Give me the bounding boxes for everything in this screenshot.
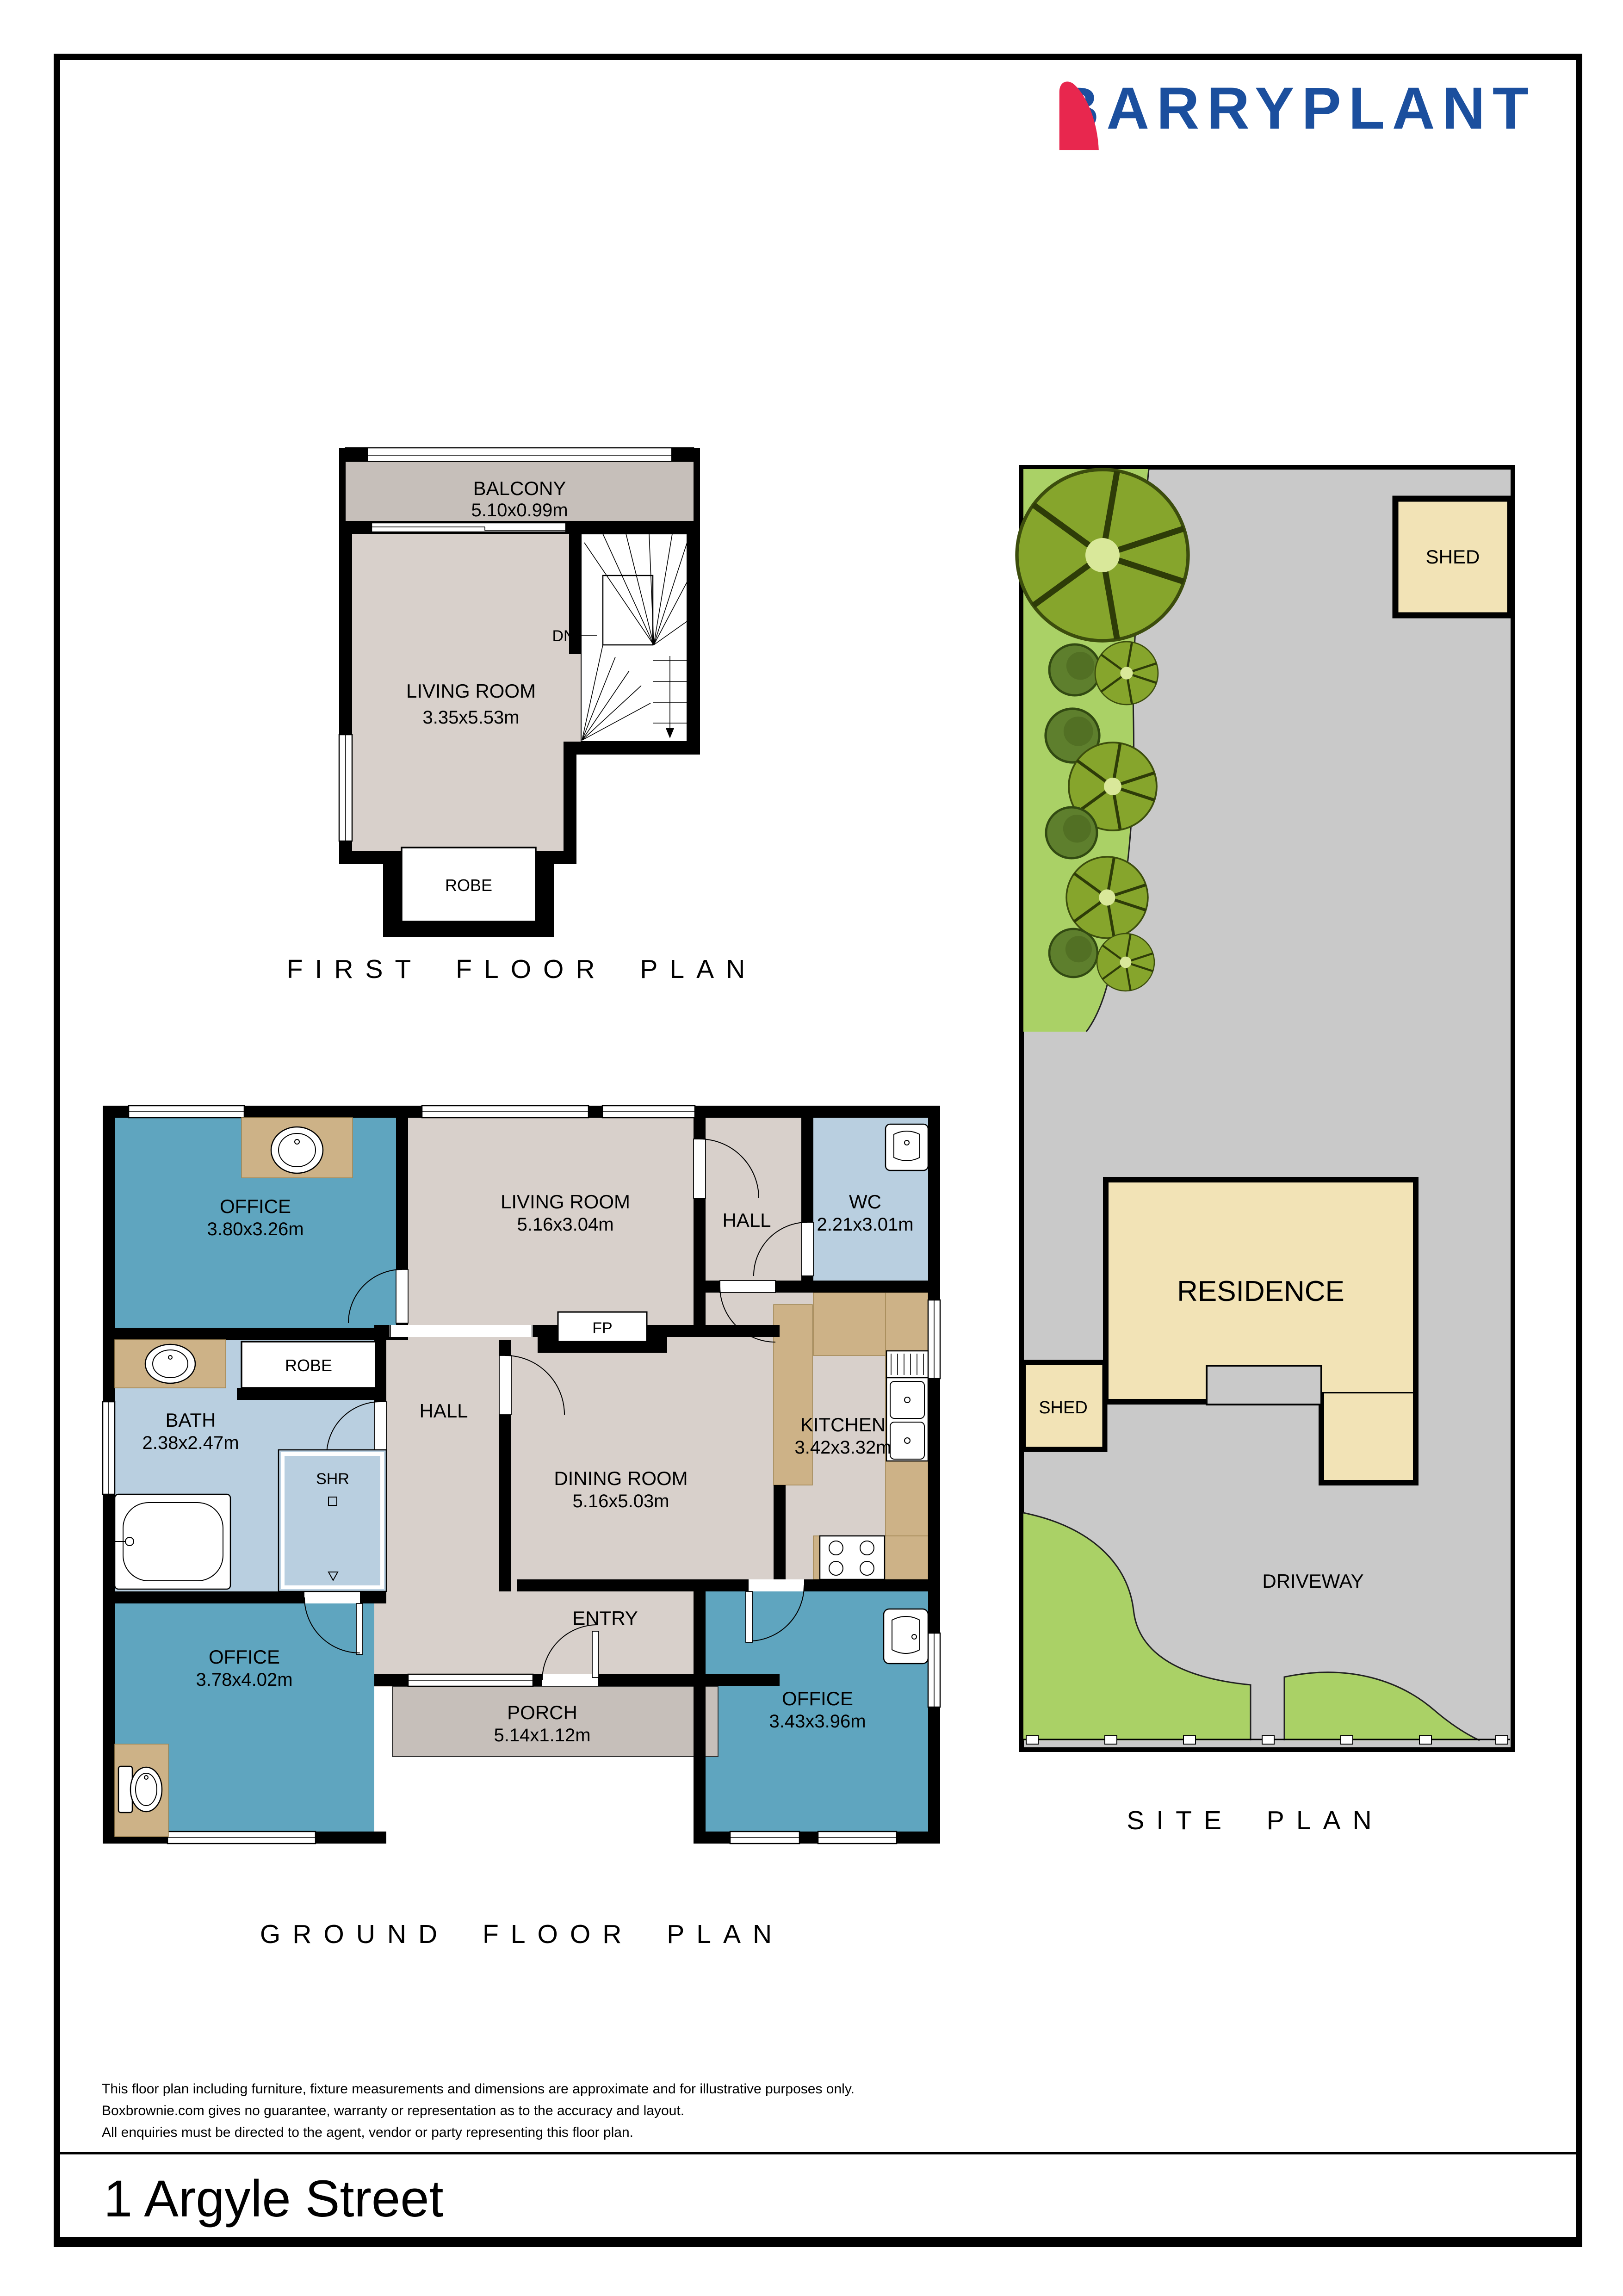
balcony-dims: 5.10x0.99m — [471, 500, 568, 520]
shower-label: SHR — [316, 1470, 349, 1488]
shed-top: SHED — [1395, 499, 1510, 615]
stairs-dn-label: DN — [552, 627, 575, 645]
dining-dims: 5.16x5.03m — [572, 1491, 669, 1511]
ground-floor-plan: FP — [103, 1106, 949, 1855]
hall-central-label: HALL — [419, 1400, 468, 1422]
palm-tree-icon — [1097, 934, 1154, 991]
first-floor-plan: BALCONY 5.10x0.99m DN — [332, 439, 707, 938]
living-window — [339, 735, 352, 841]
office-se-label: OFFICE — [782, 1688, 853, 1709]
residence-label: RESIDENCE — [1177, 1275, 1344, 1307]
toilet — [115, 1744, 168, 1837]
brand-name: BARRYPLANT — [1056, 78, 1536, 140]
palm-tree-icon — [1095, 642, 1158, 705]
ground-floor-title: GROUND FLOOR PLAN — [260, 1919, 784, 1949]
stove — [820, 1536, 885, 1579]
living-room-dims: 3.35x5.53m — [422, 707, 519, 728]
office-se-dims: 3.43x3.96m — [769, 1711, 866, 1732]
vanity-bath — [115, 1340, 226, 1388]
bathtub — [115, 1494, 230, 1589]
dining-label: DINING ROOM — [554, 1467, 688, 1489]
disclaimer: This floor plan including furniture, fix… — [102, 2078, 855, 2143]
first-floor-robe: ROBE — [383, 848, 554, 937]
sliding-door — [372, 523, 566, 532]
entry-label: ENTRY — [572, 1607, 638, 1629]
kitchen-dims: 3.42x3.32m — [794, 1437, 891, 1458]
office-nw-label: OFFICE — [220, 1195, 291, 1217]
living-dims: 5.16x3.04m — [517, 1214, 613, 1235]
office-nw-dims: 3.80x3.26m — [207, 1219, 304, 1239]
shower: SHR — [279, 1450, 386, 1591]
brand-logo: BARRYPLANT — [1056, 78, 1536, 140]
bath-label: BATH — [166, 1409, 216, 1431]
porch-dims: 5.14x1.12m — [494, 1725, 590, 1745]
living-label: LIVING ROOM — [501, 1191, 630, 1213]
bush-icon — [1049, 929, 1097, 977]
living-room-label: LIVING ROOM — [406, 680, 536, 702]
bush-icon — [1049, 644, 1100, 695]
bath-dims: 2.38x2.47m — [142, 1433, 239, 1453]
disclaimer-line: Boxbrownie.com gives no guarantee, warra… — [102, 2100, 855, 2122]
balcony: BALCONY 5.10x0.99m — [339, 448, 700, 521]
vanity-office-nw — [242, 1118, 353, 1178]
address-divider — [60, 2152, 1576, 2154]
fireplace-label: FP — [592, 1319, 612, 1337]
wc-label: WC — [849, 1191, 881, 1213]
ground-robe: ROBE — [242, 1342, 376, 1388]
disclaimer-line: This floor plan including furniture, fix… — [102, 2078, 855, 2100]
first-floor-title: FIRST FLOOR PLAN — [287, 954, 757, 984]
office-sw-dims: 3.78x4.02m — [196, 1670, 292, 1690]
kitchen-sink — [886, 1351, 928, 1461]
office-sw-label: OFFICE — [209, 1646, 280, 1668]
cased-opening — [390, 1325, 533, 1337]
robe-label: ROBE — [285, 1356, 332, 1375]
robe-label: ROBE — [445, 876, 492, 895]
porch-label: PORCH — [507, 1702, 577, 1723]
shed-top-label: SHED — [1426, 546, 1480, 568]
brand-mark-icon — [1056, 78, 1108, 152]
site-plan-title: SITE PLAN — [1127, 1805, 1383, 1836]
driveway-label: DRIVEWAY — [1262, 1570, 1363, 1592]
kitchen-label: KITCHEN — [800, 1414, 886, 1436]
bush-icon — [1046, 807, 1097, 858]
disclaimer-line: All enquiries must be directed to the ag… — [102, 2122, 855, 2143]
shed-left: SHED — [1023, 1362, 1105, 1449]
property-address: 1 Argyle Street — [104, 2169, 444, 2228]
balcony-label: BALCONY — [473, 477, 566, 499]
office-se-sink — [884, 1609, 928, 1664]
wc-sink — [886, 1124, 928, 1170]
palm-tree-icon — [1017, 470, 1188, 641]
site-plan: SHED RESIDENCE SHED DRIVEWAY — [1017, 463, 1521, 1758]
wc-dims: 2.21x3.01m — [817, 1214, 913, 1235]
shed-left-label: SHED — [1039, 1398, 1088, 1417]
palm-tree-icon — [1066, 857, 1148, 938]
hall-upper-label: HALL — [722, 1209, 771, 1231]
